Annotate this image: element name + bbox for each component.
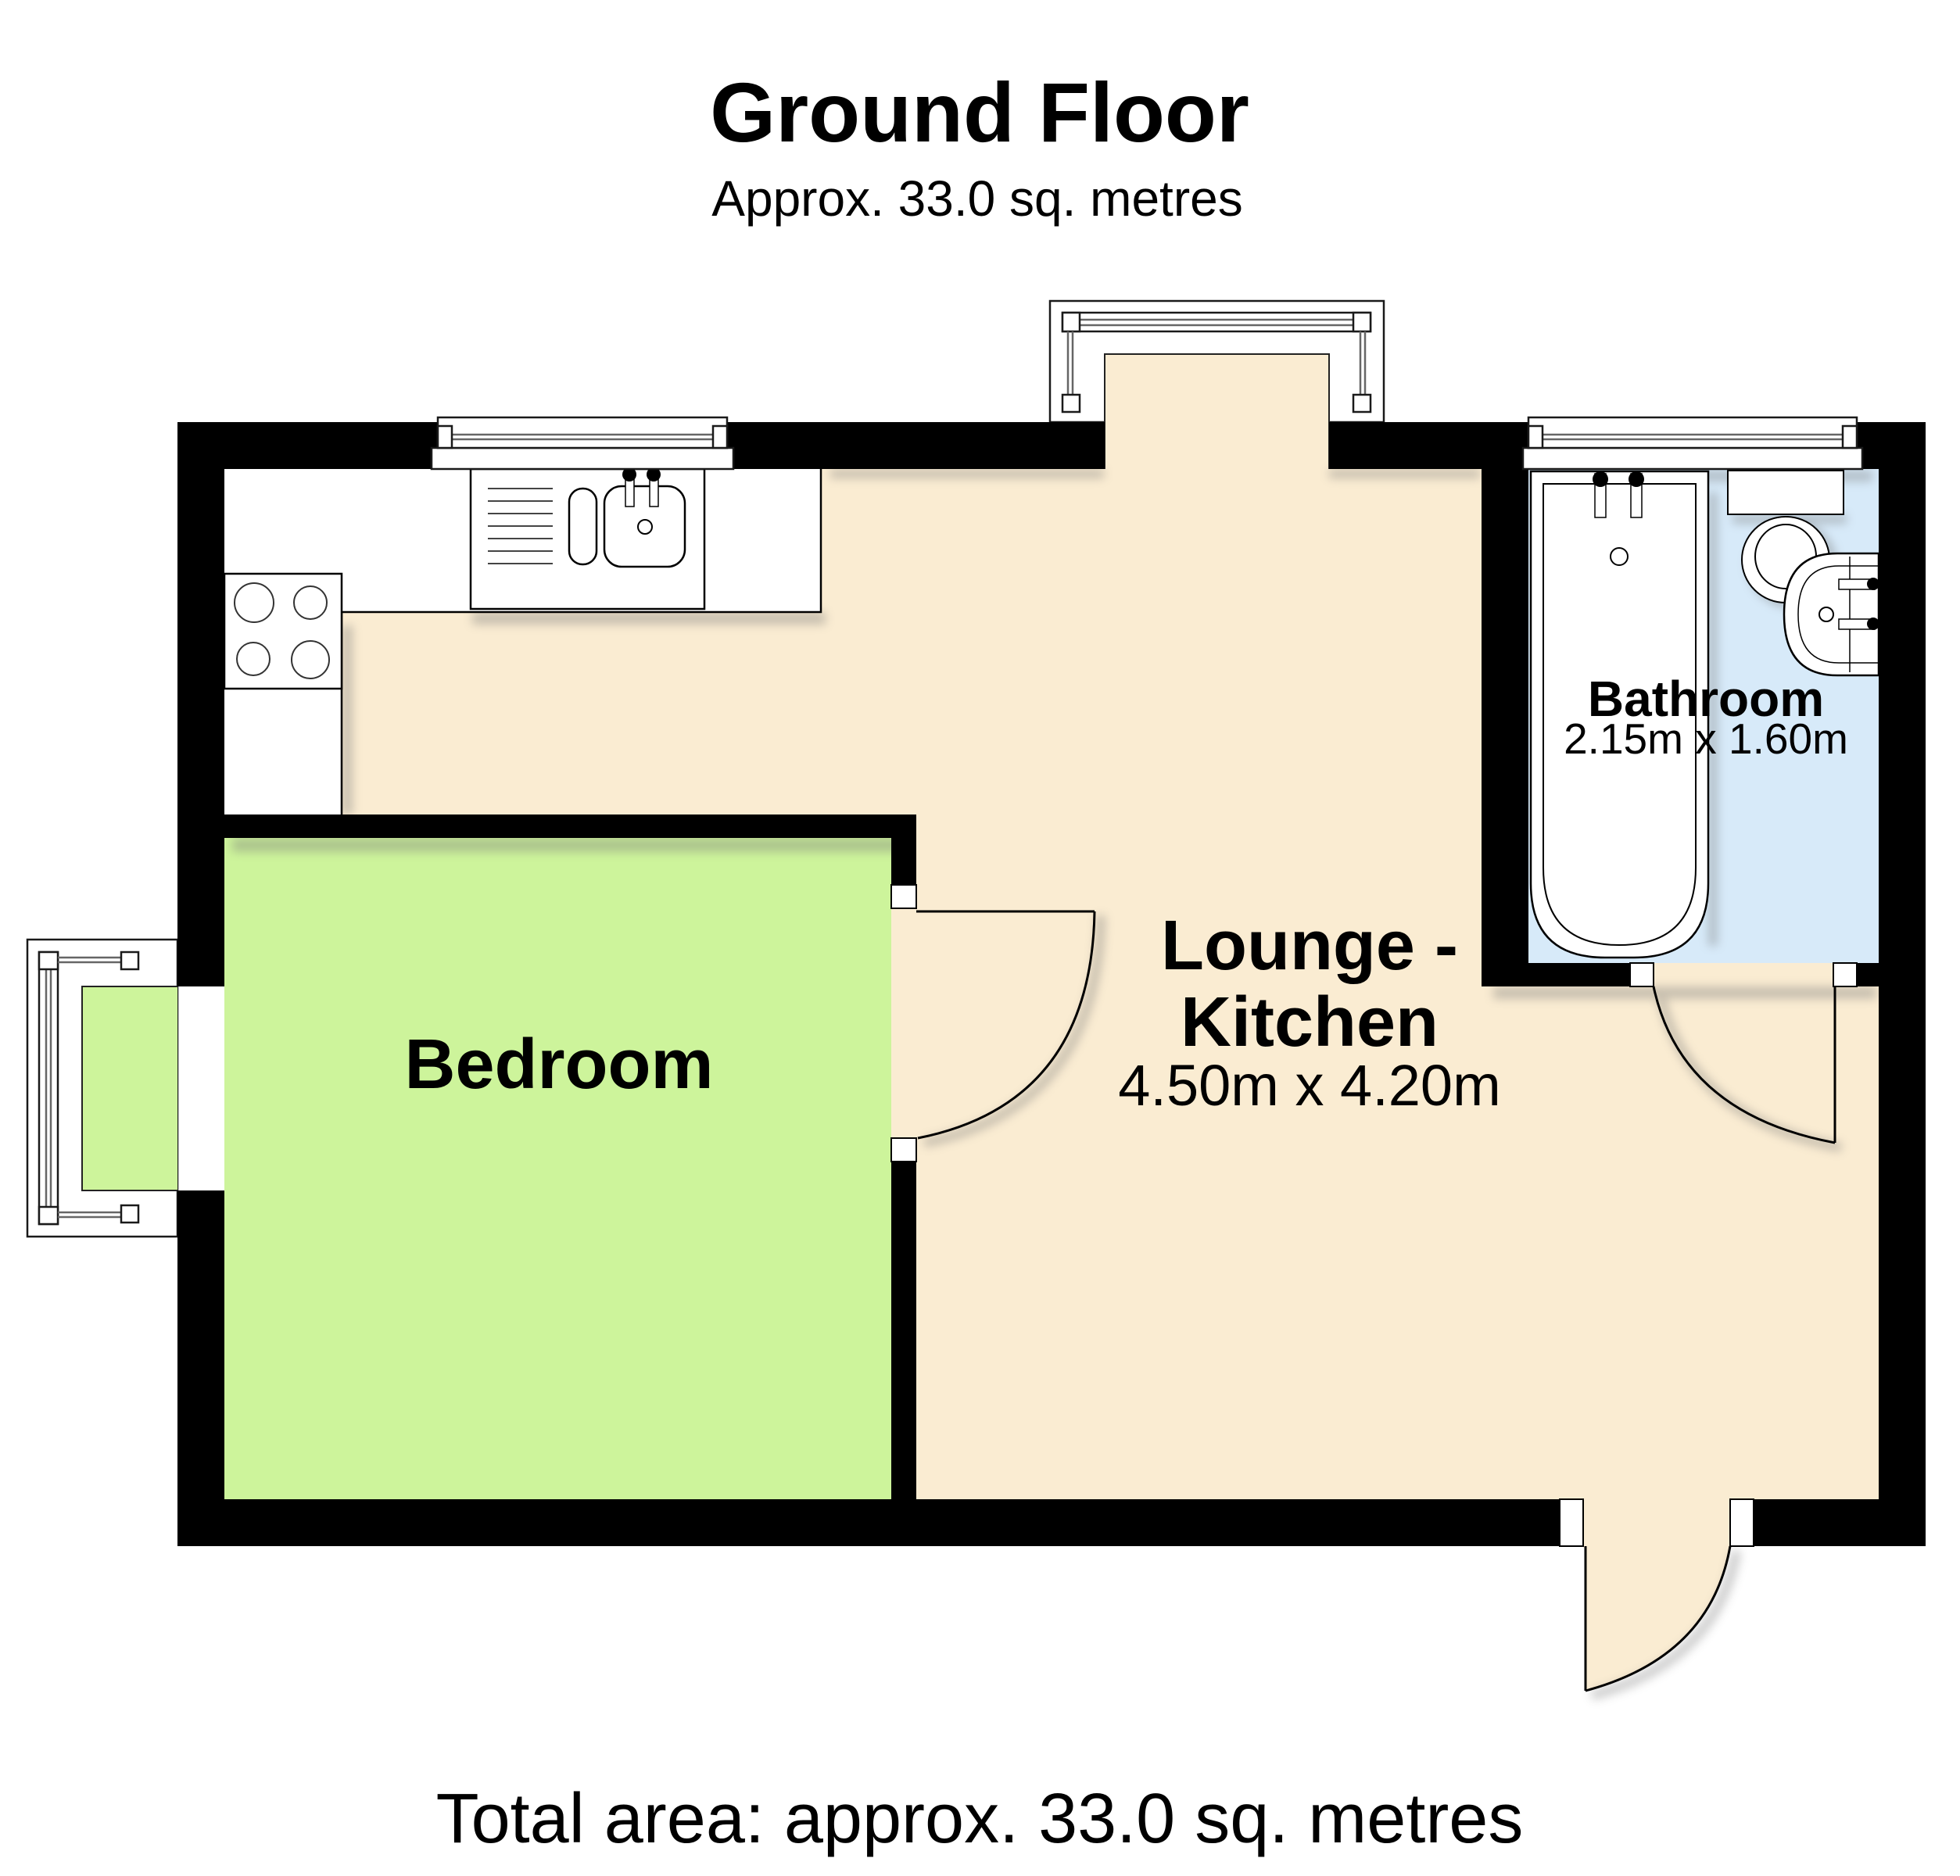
wall-bottom-right	[1754, 1499, 1926, 1546]
bedroom-door-jamb	[891, 1138, 916, 1162]
wall-left-upper	[177, 422, 224, 986]
wall-right	[1879, 422, 1926, 1546]
wall-bottom-left	[177, 1499, 1560, 1546]
bathroom-dimensions: 2.15m x 1.60m	[1564, 714, 1848, 763]
bathroom-door-jamb	[1630, 963, 1654, 986]
kitchen-sink-icon	[471, 467, 704, 609]
bedroom-bay-floor	[82, 986, 177, 1190]
bathroom-door-jamb	[1833, 963, 1857, 986]
entrance-door-jamb	[1730, 1499, 1754, 1546]
wall-bathroom-bottom-right	[1857, 963, 1879, 986]
bathroom-window	[1523, 417, 1862, 469]
lounge-label-line2: Kitchen	[1181, 983, 1439, 1062]
bedroom-floor-area	[224, 838, 891, 1499]
lounge-label-line1: Lounge -	[1161, 907, 1458, 985]
wall-bedroom-top	[177, 814, 916, 838]
window-frame-icon	[438, 417, 727, 448]
window-frame-icon	[1528, 417, 1857, 448]
bay-window-glass-band	[1062, 313, 1371, 331]
wall-left-lower	[177, 1190, 224, 1546]
hob-icon	[224, 574, 342, 689]
bedroom-label: Bedroom	[404, 1026, 713, 1104]
page-subtitle: Approx. 33.0 sq. metres	[711, 170, 1242, 227]
page-title: Ground Floor	[710, 65, 1249, 159]
wall-bedroom-divider-upper	[891, 814, 916, 885]
wall-top-2	[727, 422, 1105, 469]
wall-top-3	[1329, 422, 1528, 469]
bedroom-door-jamb	[891, 885, 916, 908]
bay-window-glass-band	[39, 952, 58, 1224]
lounge-bay-floor	[1105, 354, 1329, 469]
lounge-dimensions: 4.50m x 4.20m	[1118, 1053, 1500, 1118]
wall-bathroom-left	[1482, 469, 1528, 986]
total-area-label: Total area: approx. 33.0 sq. metres	[436, 1780, 1524, 1858]
entrance-door-jamb	[1560, 1499, 1583, 1546]
floorplan-canvas: Ground Floor Approx. 33.0 sq. metres Bed…	[0, 0, 1960, 1876]
entrance-opening-floor	[1583, 1499, 1730, 1548]
wall-bedroom-divider-lower	[891, 1162, 916, 1499]
kitchen-window	[432, 417, 733, 469]
window-sill	[1523, 448, 1862, 469]
wall-bathroom-bottom-left	[1482, 963, 1630, 986]
window-sill	[432, 448, 733, 469]
wash-basin-icon	[1784, 553, 1879, 675]
